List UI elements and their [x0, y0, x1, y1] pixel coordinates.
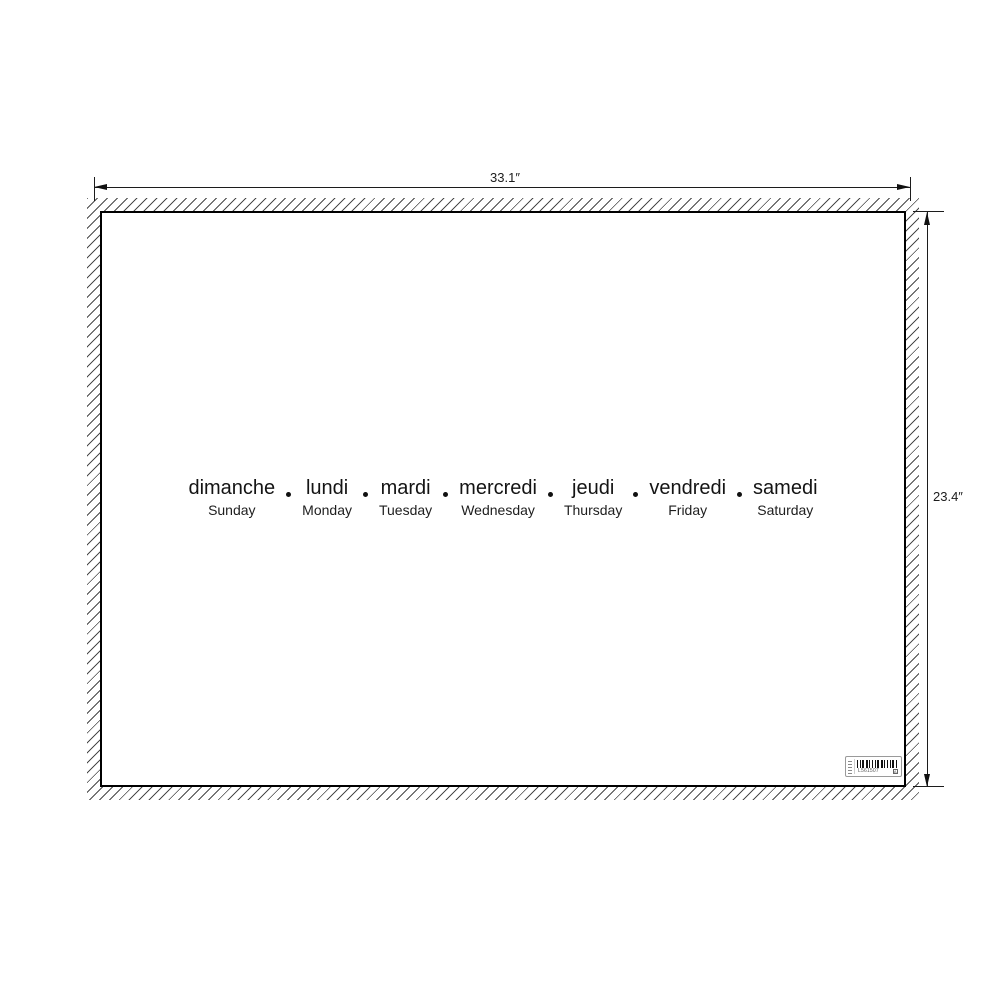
day-separator-dot: [363, 492, 368, 497]
day-item: samedi Saturday: [753, 477, 817, 518]
day-item: vendredi Friday: [649, 477, 726, 518]
day-item: mercredi Wednesday: [459, 477, 537, 518]
poster-canvas: dimanche Sunday lundi Monday mardi Tuesd…: [100, 211, 906, 787]
barcode-label-vertical-text: [848, 759, 852, 774]
arrow-up-icon: [924, 212, 930, 225]
arrow-right-icon: [897, 184, 910, 190]
day-item: lundi Monday: [302, 477, 352, 518]
day-separator-dot: [737, 492, 742, 497]
day-name-english: Monday: [302, 502, 352, 518]
day-name-english: Tuesday: [379, 502, 432, 518]
day-name-english: Wednesday: [459, 502, 537, 518]
day-name-french: jeudi: [564, 477, 622, 500]
width-dimension-label: 33.1″: [440, 170, 570, 185]
day-separator-dot: [286, 492, 291, 497]
day-name-english: Saturday: [753, 502, 817, 518]
barcode-grade-box: A: [893, 769, 899, 775]
width-dimension-line: [94, 187, 910, 188]
day-name-english: Sunday: [188, 502, 275, 518]
days-row: dimanche Sunday lundi Monday mardi Tuesd…: [102, 477, 904, 518]
day-name-french: dimanche: [188, 477, 275, 500]
day-separator-dot: [548, 492, 553, 497]
day-separator-dot: [633, 492, 638, 497]
day-item: dimanche Sunday: [188, 477, 275, 518]
day-name-french: lundi: [302, 477, 352, 500]
height-dimension-line: [927, 212, 928, 787]
height-dimension-label: 23.4″: [933, 489, 963, 504]
arrow-down-icon: [924, 774, 930, 787]
day-name-french: mardi: [379, 477, 432, 500]
product-dimension-drawing: 33.1″ 23.4″ dimanche Sunday lundi Monday…: [0, 0, 1000, 1000]
barcode-code: L561507: [858, 769, 879, 774]
barcode-label: L561507 A: [845, 756, 902, 777]
day-item: mardi Tuesday: [379, 477, 432, 518]
barcode-label-divider: [854, 759, 855, 774]
barcode-icon: [857, 760, 897, 768]
day-item: jeudi Thursday: [564, 477, 622, 518]
day-name-french: samedi: [753, 477, 817, 500]
day-name-english: Thursday: [564, 502, 622, 518]
day-name-french: mercredi: [459, 477, 537, 500]
day-separator-dot: [443, 492, 448, 497]
day-name-english: Friday: [649, 502, 726, 518]
arrow-left-icon: [94, 184, 107, 190]
day-name-french: vendredi: [649, 477, 726, 500]
width-extension-line-right: [910, 177, 911, 201]
